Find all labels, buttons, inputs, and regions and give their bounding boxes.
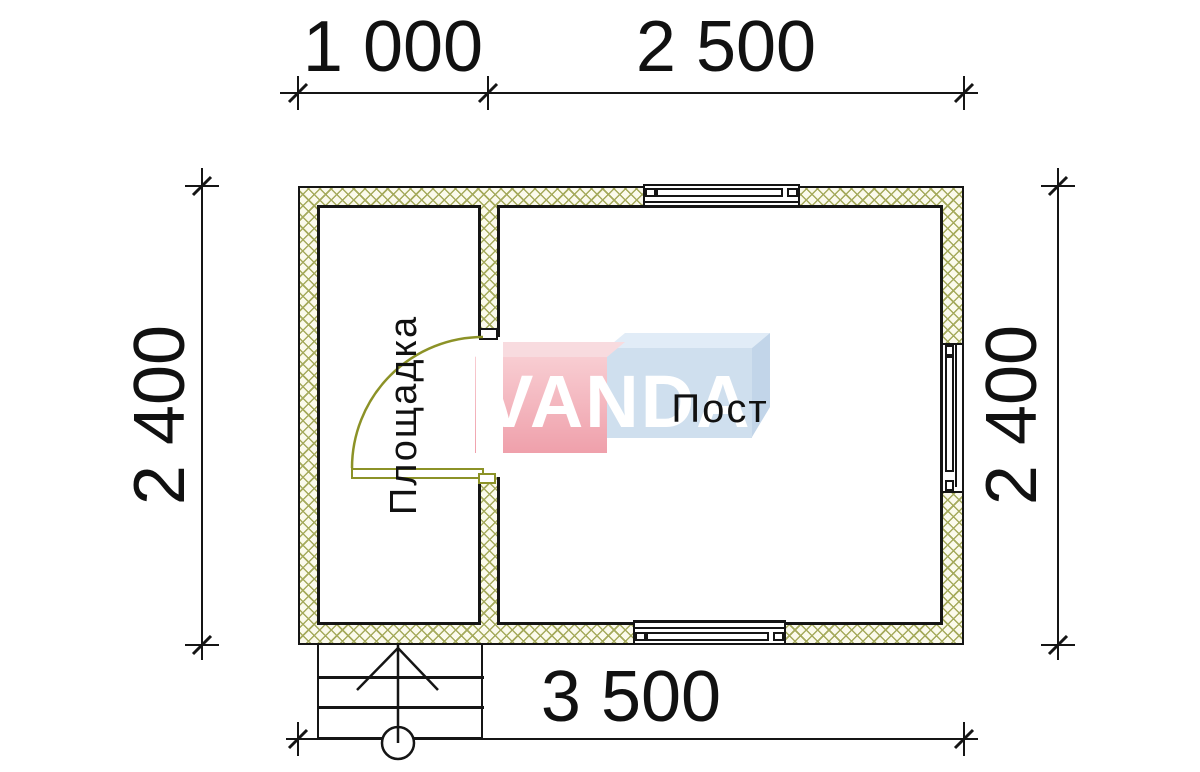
window-bottom-sash	[646, 632, 769, 641]
window-top-sash	[656, 188, 783, 197]
room-label-platform: Площадка	[381, 305, 427, 525]
window-top-block-left	[645, 188, 656, 197]
door-hinge-block	[478, 473, 496, 484]
window-top-sill-line	[645, 201, 798, 203]
window-bottom-sill-line	[635, 627, 784, 629]
room-label-post: Пост	[650, 387, 790, 431]
floor-plan-canvas: VANDA	[0, 0, 1200, 772]
dimension-text-bottom: 3 500	[298, 662, 964, 732]
door-top-jamb	[479, 328, 498, 340]
window-right	[940, 343, 964, 493]
dimension-text-top-right: 2 500	[488, 12, 964, 82]
window-right-sash	[945, 356, 954, 472]
dimension-text-right: 2 400	[974, 170, 1050, 660]
window-top-block-right	[787, 188, 798, 197]
window-bottom-block-right	[773, 632, 784, 641]
window-bottom	[633, 620, 786, 645]
window-right-block-top	[945, 345, 954, 356]
window-bottom-block-left	[635, 632, 646, 641]
dimension-text-top-left: 1 000	[298, 12, 488, 82]
dimension-text-left: 2 400	[122, 170, 198, 660]
window-top	[643, 184, 800, 208]
door-opening	[476, 337, 503, 477]
window-right-sill-line	[955, 345, 957, 487]
window-right-block-bottom	[945, 480, 954, 491]
logo-blue-top-face	[607, 333, 770, 348]
